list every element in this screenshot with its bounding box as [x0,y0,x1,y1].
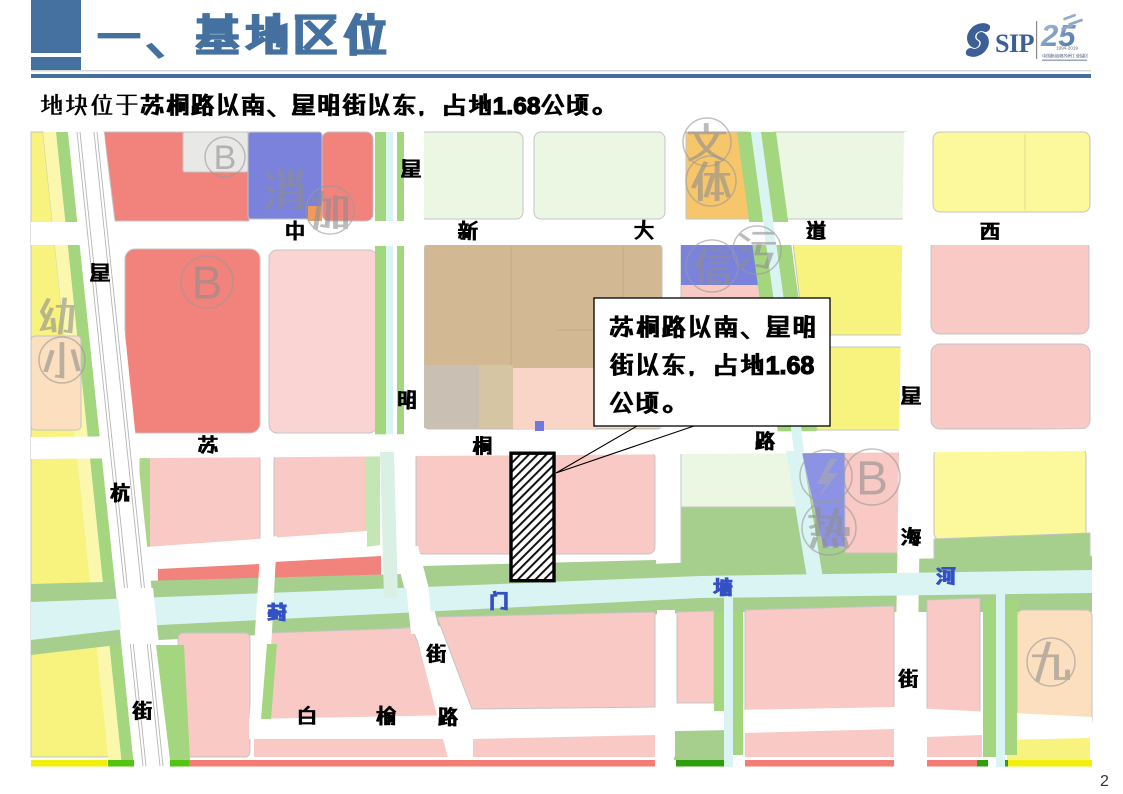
svg-text:1.68: 1.68 [766,352,815,380]
svg-text:B: B [856,452,888,505]
svg-text:B: B [214,139,237,177]
svg-text:B: B [192,257,223,309]
svg-text:SIP: SIP [995,29,1035,58]
svg-text:1994-2019: 1994-2019 [1056,46,1078,51]
svg-text:1.68: 1.68 [493,93,541,120]
svg-text:2: 2 [1100,773,1109,790]
